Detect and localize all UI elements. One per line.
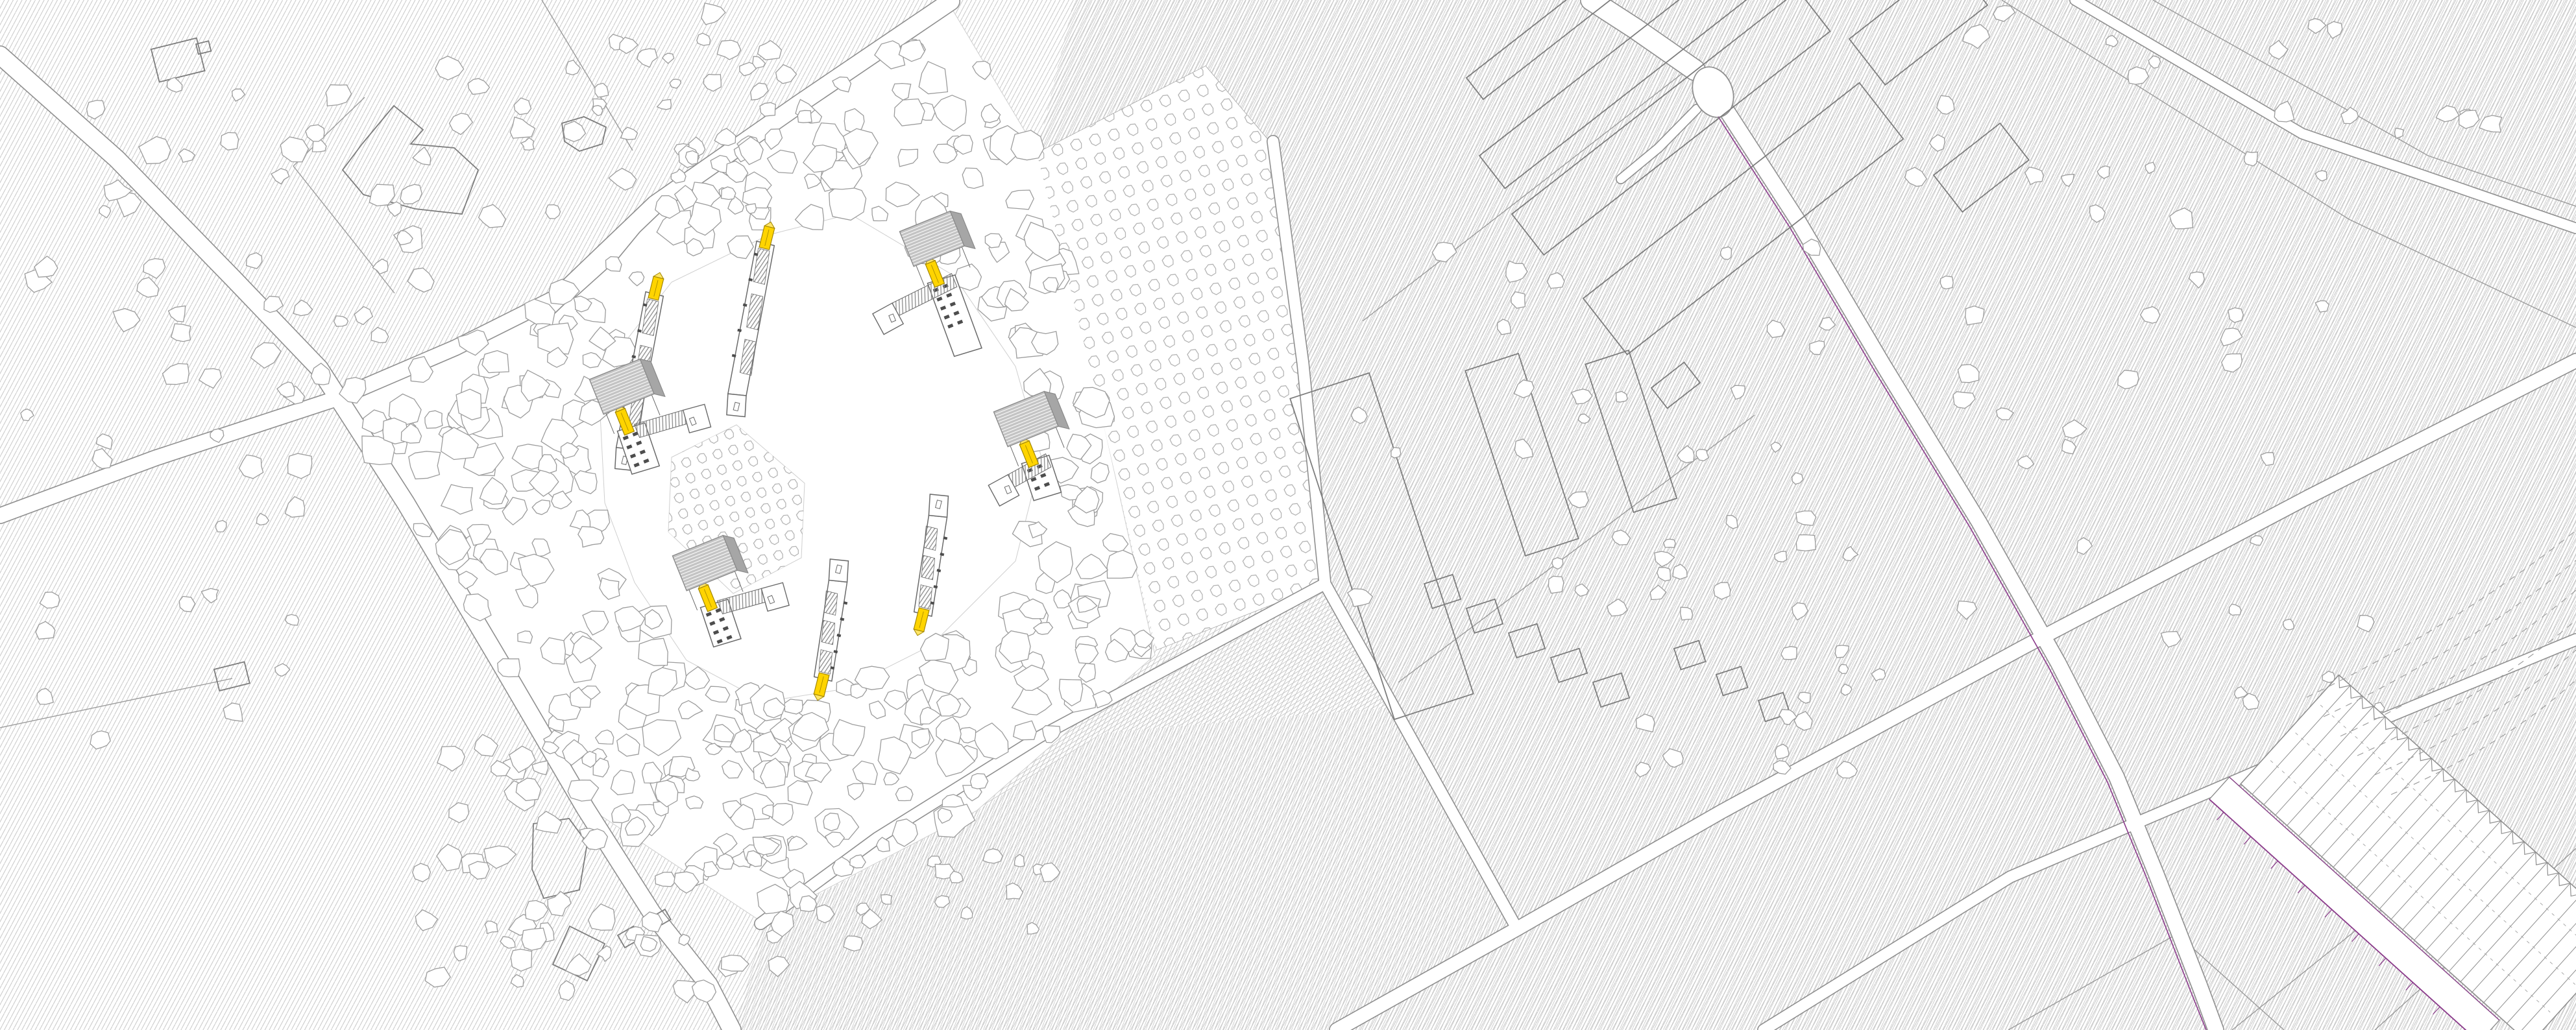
tree <box>482 351 509 373</box>
site-plan-canvas <box>0 0 2576 1030</box>
site-plan-drawing <box>0 0 2576 1030</box>
tree <box>1548 576 1564 593</box>
tree <box>784 699 803 714</box>
tree <box>1552 558 1563 569</box>
tree <box>409 451 441 479</box>
tree <box>970 774 988 789</box>
tree <box>788 780 812 805</box>
tree <box>1965 306 1984 325</box>
tree <box>485 921 498 933</box>
tree <box>518 631 533 643</box>
tree <box>1714 582 1731 599</box>
tree <box>1796 535 1816 551</box>
tree <box>1781 647 1797 660</box>
tree <box>760 102 775 116</box>
tree <box>546 205 560 219</box>
tree <box>655 872 676 887</box>
tree <box>2244 152 2257 166</box>
tree <box>823 813 840 831</box>
tree <box>1775 744 1789 759</box>
tree <box>511 949 531 971</box>
tree <box>1940 276 1953 289</box>
tree <box>216 520 226 532</box>
tree <box>1721 247 1732 259</box>
tree <box>1839 664 1849 673</box>
tree <box>171 324 191 341</box>
tree <box>288 453 312 479</box>
tree <box>413 863 431 881</box>
tree <box>1391 448 1401 458</box>
tree <box>1681 607 1693 620</box>
tree <box>881 894 892 904</box>
tree <box>1664 539 1675 547</box>
tree <box>498 659 520 677</box>
tree <box>797 110 812 123</box>
